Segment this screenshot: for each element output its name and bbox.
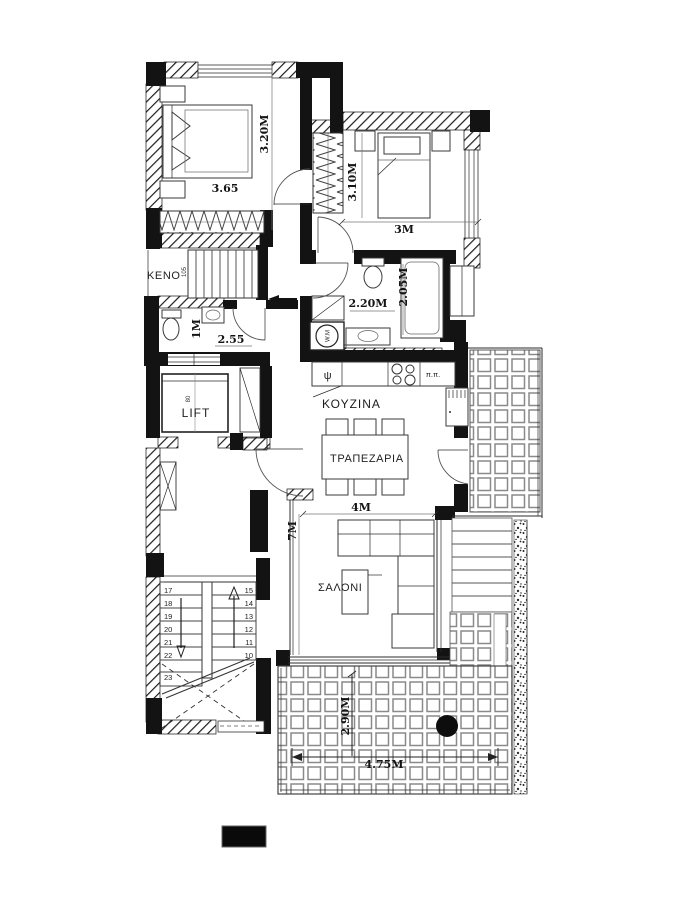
svg-text:22: 22 bbox=[164, 651, 172, 660]
floor-plan-drawing: 3.65 3.20M 3.10M 3M bbox=[0, 0, 675, 900]
nightstand bbox=[432, 131, 450, 151]
svg-text:18: 18 bbox=[164, 599, 172, 608]
hob-label: π.π. bbox=[426, 370, 441, 379]
keno-stairwell: KENO 105 bbox=[147, 250, 297, 303]
keno-label: KENO bbox=[147, 270, 181, 282]
svg-text:11: 11 bbox=[245, 638, 253, 647]
dining-room: ΤΡΑΠΕΖΑΡΙΑ bbox=[322, 419, 408, 495]
washing-machine: W.M bbox=[310, 322, 344, 350]
floor-plan-page: 3.65 3.20M 3.10M 3M bbox=[0, 0, 675, 900]
svg-text:15: 15 bbox=[245, 586, 253, 595]
bedroom-2: 3.10M 3M bbox=[313, 131, 481, 253]
stairs-lower: 17 18 19 20 21 22 23 15 14 13 12 11 10 bbox=[160, 576, 264, 732]
bedroom2-width-dim: 3M bbox=[394, 223, 414, 236]
dining-label: ΤΡΑΠΕΖΑΡΙΑ bbox=[330, 453, 404, 465]
nightstand bbox=[160, 181, 185, 198]
wc-width-dim: 2.55 bbox=[218, 333, 245, 346]
sink-symbol: ψ bbox=[324, 370, 332, 382]
double-bed bbox=[163, 105, 252, 178]
terrace: 2.90M 4.75M bbox=[278, 666, 512, 794]
lift-door-note: 80 bbox=[186, 395, 192, 402]
up-arrow bbox=[229, 587, 239, 648]
svg-text:20: 20 bbox=[164, 625, 172, 634]
gravel-strip bbox=[514, 520, 527, 794]
svg-text:14: 14 bbox=[245, 599, 253, 608]
bedroom2-window bbox=[465, 150, 478, 238]
keno-riser-note: 105 bbox=[182, 266, 188, 277]
hall-height-dim: 7M bbox=[286, 521, 299, 541]
bathroom-height-dim: 2.05M bbox=[397, 268, 410, 307]
svg-text:17: 17 bbox=[164, 586, 172, 595]
scale-marker bbox=[222, 826, 266, 847]
bathroom-width-dim: 2.20M bbox=[349, 297, 388, 310]
nightstand bbox=[355, 131, 375, 151]
side-steps bbox=[452, 518, 512, 612]
laundry-closet bbox=[312, 296, 344, 320]
counter bbox=[312, 362, 455, 397]
hall-width-dim: 4M bbox=[351, 501, 371, 514]
bedroom1-height-dim: 3.20M bbox=[258, 115, 271, 154]
terrace-depth-dim: 2.90M bbox=[339, 697, 352, 736]
toilet bbox=[162, 310, 181, 340]
balcony-door-arc bbox=[438, 450, 468, 484]
living-label: ΣΑΛΟΝΙ bbox=[318, 582, 362, 594]
washbasin bbox=[346, 328, 390, 345]
column bbox=[436, 715, 458, 737]
lift-label: LIFT bbox=[182, 406, 211, 420]
sliding-door bbox=[288, 657, 450, 663]
down-arrow bbox=[177, 598, 185, 657]
door-arc bbox=[274, 169, 310, 205]
kitchen-label: ΚΟΥΖΙΝΑ bbox=[322, 397, 381, 411]
nightstand bbox=[160, 86, 185, 102]
svg-text:13: 13 bbox=[245, 612, 253, 621]
living-room: ΣΑΛΟΝΙ bbox=[288, 500, 450, 663]
wardrobe bbox=[160, 211, 264, 233]
door-arc bbox=[318, 217, 353, 253]
duct bbox=[160, 462, 176, 510]
stair-exit-door bbox=[218, 721, 264, 732]
fridge bbox=[446, 388, 468, 426]
toilet bbox=[362, 258, 384, 288]
svg-text:12: 12 bbox=[245, 625, 253, 634]
svg-text:19: 19 bbox=[164, 612, 172, 621]
bedroom1-width-dim: 3.65 bbox=[212, 182, 239, 195]
wardrobe bbox=[313, 133, 343, 213]
door-arc bbox=[313, 263, 348, 298]
svg-text:23: 23 bbox=[164, 673, 172, 682]
bedroom1-window bbox=[198, 65, 272, 77]
wc-height-dim: 1M bbox=[190, 319, 203, 339]
washing-machine-label: W.M bbox=[326, 330, 332, 342]
step-numbers-right: 15 14 13 12 11 10 bbox=[245, 586, 253, 660]
bedroom-1: 3.65 3.20M bbox=[160, 66, 310, 233]
terrace-width-dim: 4.75M bbox=[365, 758, 404, 771]
shaft bbox=[240, 368, 260, 432]
svg-text:21: 21 bbox=[164, 638, 172, 647]
bedroom2-height-dim: 3.10M bbox=[346, 163, 359, 202]
sink bbox=[202, 307, 224, 323]
wc: 1M 2.55 bbox=[162, 307, 265, 346]
double-bed bbox=[378, 133, 430, 218]
